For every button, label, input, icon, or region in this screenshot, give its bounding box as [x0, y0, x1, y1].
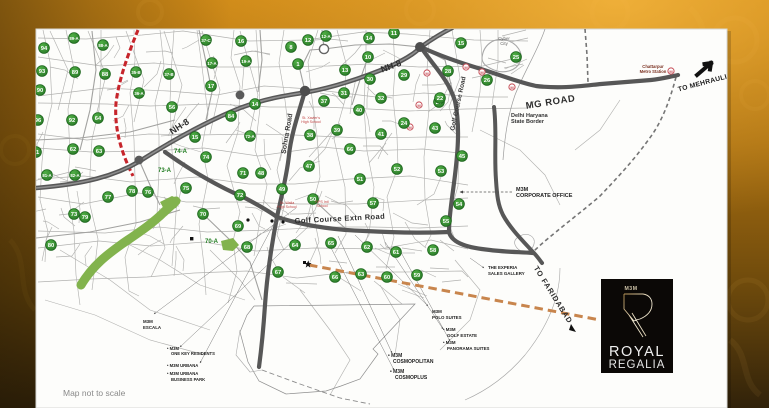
svg-text:61: 61 [393, 250, 400, 256]
svg-text:47: 47 [306, 164, 312, 170]
svg-text:M3M: M3M [432, 309, 442, 314]
svg-text:13: 13 [342, 68, 349, 74]
svg-text:15: 15 [458, 41, 465, 47]
svg-text:REGALIA: REGALIA [609, 359, 666, 371]
svg-text:41: 41 [378, 132, 385, 138]
svg-text:ESCALA: ESCALA [143, 325, 162, 330]
svg-text:GOLF ESTATE: GOLF ESTATE [447, 333, 477, 338]
svg-text:• M3M URBANA: • M3M URBANA [167, 363, 198, 368]
svg-text:62: 62 [70, 147, 76, 153]
svg-text:90: 90 [37, 88, 43, 94]
svg-text:69: 69 [235, 224, 242, 230]
svg-text:City: City [500, 41, 508, 46]
svg-text:72-A: 72-A [245, 134, 254, 139]
svg-text:64: 64 [292, 243, 299, 249]
svg-text:93: 93 [39, 69, 46, 75]
svg-text:High School: High School [277, 205, 297, 209]
svg-text:11: 11 [391, 31, 398, 37]
svg-text:63: 63 [358, 272, 365, 278]
svg-text:80: 80 [48, 243, 54, 249]
svg-text:• M3M: • M3M [443, 327, 456, 332]
svg-text:31: 31 [341, 91, 348, 97]
svg-text:52: 52 [394, 167, 400, 173]
svg-text:60: 60 [384, 275, 390, 281]
svg-text:ONE KEY RESIDENTS: ONE KEY RESIDENTS [171, 351, 215, 356]
svg-text:88-A: 88-A [98, 43, 107, 48]
svg-text:45: 45 [459, 154, 466, 160]
svg-text:64: 64 [95, 116, 102, 122]
svg-text:76: 76 [145, 190, 152, 196]
svg-text:71: 71 [240, 171, 247, 177]
svg-text:74: 74 [203, 155, 210, 161]
svg-text:40: 40 [356, 108, 362, 114]
svg-text:• M3M: • M3M [443, 340, 456, 345]
svg-text:94: 94 [41, 46, 48, 52]
svg-text:78: 78 [129, 189, 136, 195]
svg-text:66: 66 [332, 275, 339, 281]
svg-text:70-A: 70-A [205, 239, 219, 245]
svg-text:28: 28 [445, 69, 452, 75]
svg-text:• M3M URBANA: • M3M URBANA [167, 371, 198, 376]
svg-text:65: 65 [328, 241, 335, 247]
svg-text:39: 39 [334, 128, 341, 134]
svg-text:92: 92 [69, 118, 75, 124]
svg-text:M3M: M3M [624, 286, 637, 292]
svg-text:75: 75 [183, 186, 190, 192]
svg-text:22: 22 [437, 96, 443, 102]
svg-text:82-A: 82-A [70, 173, 79, 178]
svg-text:29: 29 [401, 73, 408, 79]
svg-text:THE EXPERIA: THE EXPERIA [488, 265, 518, 270]
svg-text:14: 14 [366, 36, 373, 42]
svg-text:57: 57 [370, 201, 376, 207]
svg-text:54: 54 [456, 202, 463, 208]
svg-text:62: 62 [364, 245, 370, 251]
svg-text:Map not to scale: Map not to scale [63, 388, 126, 398]
svg-text:14: 14 [252, 102, 259, 108]
svg-text:37-B: 37-B [164, 72, 173, 77]
svg-text:53: 53 [438, 169, 445, 175]
svg-text:SALES GALLERY: SALES GALLERY [488, 271, 525, 276]
svg-text:19-A: 19-A [241, 59, 250, 64]
svg-text:POLO SUITES: POLO SUITES [432, 315, 462, 320]
svg-text:73: 73 [71, 212, 78, 218]
svg-text:58: 58 [430, 248, 437, 254]
svg-text:COSMOPLUS: COSMOPLUS [395, 375, 428, 381]
svg-text:15: 15 [192, 135, 199, 141]
svg-text:67: 67 [275, 270, 281, 276]
svg-text:77: 77 [105, 195, 111, 201]
svg-text:17-A: 17-A [207, 61, 216, 66]
svg-text:16: 16 [238, 39, 245, 45]
svg-text:81-A: 81-A [42, 173, 51, 178]
svg-text:88: 88 [102, 72, 109, 78]
svg-text:Metro Station: Metro Station [640, 69, 667, 74]
svg-text:48: 48 [258, 171, 265, 177]
svg-text:38: 38 [307, 133, 314, 139]
svg-text:PANORAMA SUITES: PANORAMA SUITES [447, 346, 490, 351]
svg-text:37: 37 [321, 99, 327, 105]
svg-text:24: 24 [401, 121, 408, 127]
svg-text:High School: High School [301, 120, 321, 124]
svg-text:72: 72 [237, 193, 243, 199]
svg-text:26: 26 [484, 78, 491, 84]
svg-text:25: 25 [513, 55, 520, 61]
svg-text:School: School [317, 204, 328, 208]
svg-text:79: 79 [82, 215, 89, 221]
svg-text:70: 70 [200, 212, 206, 218]
svg-text:74-A: 74-A [174, 149, 188, 155]
svg-text:55: 55 [443, 219, 450, 225]
svg-text:CORPORATE OFFICE: CORPORATE OFFICE [516, 193, 573, 199]
svg-text:63: 63 [96, 149, 103, 155]
svg-text:36-A: 36-A [134, 91, 143, 96]
svg-text:43: 43 [432, 126, 439, 132]
svg-text:BUSINESS PARK: BUSINESS PARK [171, 377, 205, 382]
svg-text:State Border: State Border [511, 119, 545, 125]
svg-text:37-C: 37-C [201, 38, 210, 43]
svg-text:56: 56 [169, 105, 176, 111]
svg-text:89: 89 [72, 70, 79, 76]
svg-text:51: 51 [357, 177, 364, 183]
svg-text:89-A: 89-A [69, 36, 78, 41]
svg-text:32: 32 [378, 96, 384, 102]
svg-text:66: 66 [347, 147, 354, 153]
svg-text:10: 10 [365, 55, 371, 61]
svg-text:17: 17 [208, 84, 214, 90]
svg-text:12-A: 12-A [321, 34, 330, 39]
svg-text:COSMOPOLITAN: COSMOPOLITAN [393, 359, 434, 365]
svg-text:73-A: 73-A [158, 168, 172, 174]
svg-text:M3M: M3M [143, 319, 153, 324]
svg-text:12: 12 [305, 38, 311, 44]
svg-text:49: 49 [279, 187, 286, 193]
svg-text:84: 84 [228, 114, 235, 120]
svg-text:68: 68 [244, 245, 251, 251]
svg-text:ROYAL: ROYAL [609, 344, 665, 360]
svg-text:35-B: 35-B [131, 70, 140, 75]
svg-text:30: 30 [367, 77, 373, 83]
svg-text:59: 59 [414, 273, 421, 279]
